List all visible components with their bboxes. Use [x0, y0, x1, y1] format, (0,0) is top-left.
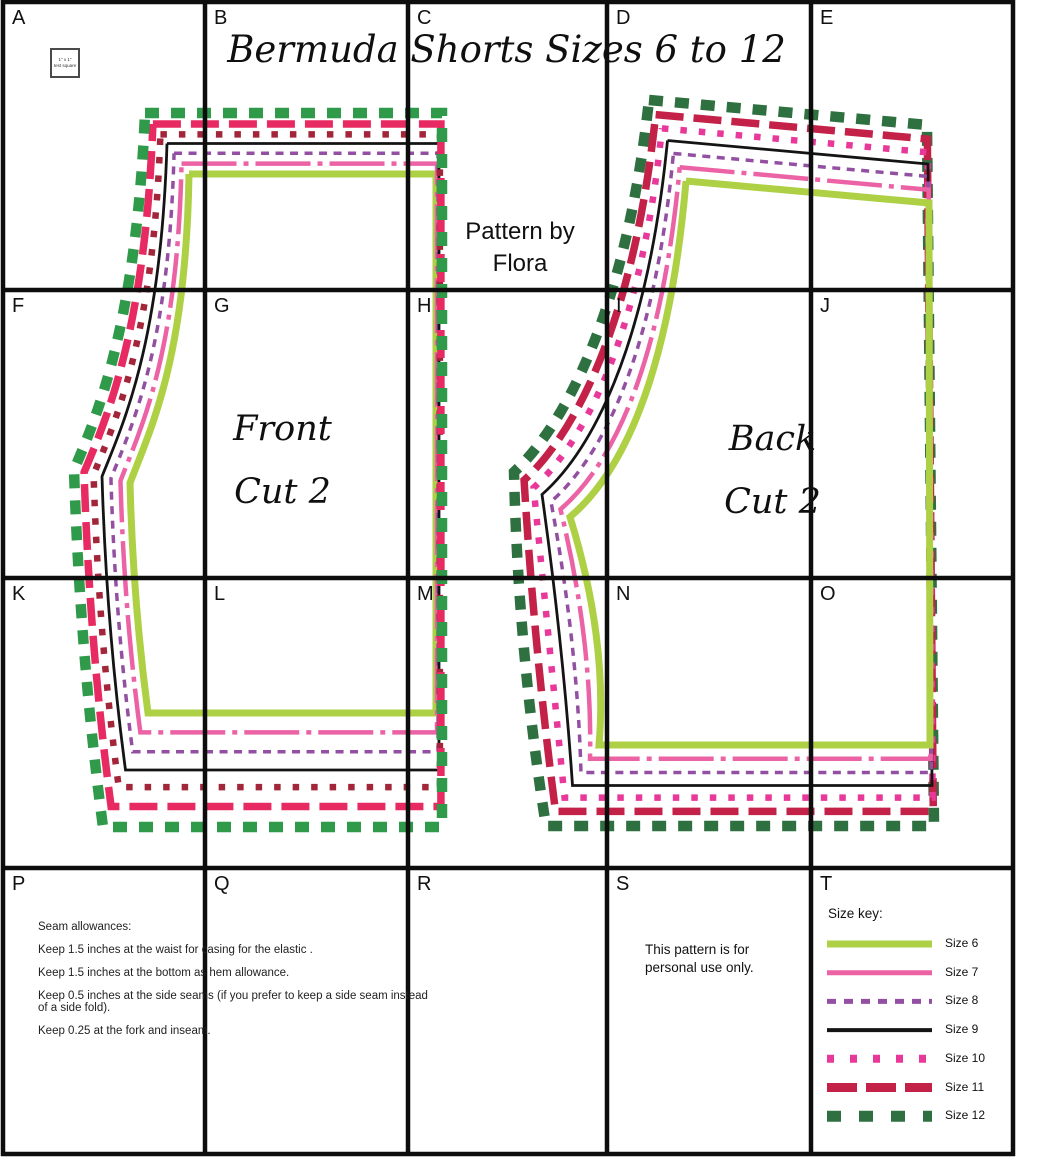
seam-allowance-line-3: Keep 0.5 inches at the side seams (if yo… — [38, 990, 438, 1014]
size-key-label-12: Size 12 — [945, 1108, 985, 1122]
seam-allowance-line-2: Keep 1.5 inches at the bottom as hem all… — [38, 967, 438, 979]
tile-label-g: G — [214, 295, 230, 318]
size-key-heading: Size key: — [828, 906, 883, 921]
tile-label-k: K — [12, 583, 25, 606]
tile-label-a: A — [12, 7, 25, 30]
usage-note: This pattern is for personal use only. — [645, 941, 815, 977]
seam-allowance-line-1: Keep 1.5 inches at the waist for casing … — [38, 944, 438, 956]
back-piece-name: Back — [690, 408, 855, 471]
tile-label-i: I — [616, 295, 622, 318]
tile-label-t: T — [820, 873, 832, 896]
usage-note-line1: This pattern is for — [645, 941, 815, 959]
tile-label-l: L — [214, 583, 225, 606]
tile-label-b: B — [214, 7, 227, 30]
size-key-swatches — [827, 944, 932, 1116]
front-piece-cut: Cut 2 — [205, 461, 360, 524]
seam-allowance-line-4: Keep 0.25 at the fork and inseam. — [38, 1025, 438, 1037]
tile-label-o: O — [820, 583, 836, 606]
seam-allowance-heading: Seam allowances: — [38, 921, 438, 933]
front-piece-name: Front — [205, 398, 360, 461]
back-piece-cut: Cut 2 — [690, 471, 855, 534]
tile-label-h: H — [417, 295, 431, 318]
tile-label-e: E — [820, 7, 833, 30]
tile-label-n: N — [616, 583, 630, 606]
seam-allowance-notes: Seam allowances: Keep 1.5 inches at the … — [38, 921, 438, 1048]
tile-label-p: P — [12, 873, 25, 896]
front-piece-label: Front Cut 2 — [205, 398, 360, 524]
size-key-label-7: Size 7 — [945, 965, 978, 979]
size-key-label-11: Size 11 — [945, 1080, 984, 1094]
page-title: Bermuda Shorts Sizes 6 to 12 — [0, 28, 1013, 71]
size-key-label-10: Size 10 — [945, 1051, 985, 1065]
seam-allowance-lines: Keep 1.5 inches at the waist for casing … — [38, 944, 438, 1037]
pattern-byline: Pattern by Flora — [430, 216, 610, 280]
byline-line2: Flora — [430, 248, 610, 280]
pattern-sheet: Bermuda Shorts Sizes 6 to 12 Pattern by … — [0, 0, 1056, 1159]
test-square-caption: test square — [52, 63, 78, 69]
tile-label-q: Q — [214, 873, 230, 896]
size-key-label-8: Size 8 — [945, 993, 978, 1007]
tile-label-s: S — [616, 873, 629, 896]
test-square: 1" x 1" test square — [50, 48, 80, 78]
tile-label-f: F — [12, 295, 24, 318]
tile-label-m: M — [417, 583, 434, 606]
size-key-label-9: Size 9 — [945, 1022, 978, 1036]
byline-line1: Pattern by — [430, 216, 610, 248]
back-piece-label: Back Cut 2 — [690, 408, 855, 534]
usage-note-line2: personal use only. — [645, 959, 815, 977]
tile-label-j: J — [820, 295, 830, 318]
size-key-label-6: Size 6 — [945, 936, 978, 950]
tile-label-c: C — [417, 7, 431, 30]
tile-label-d: D — [616, 7, 630, 30]
tile-label-r: R — [417, 873, 431, 896]
